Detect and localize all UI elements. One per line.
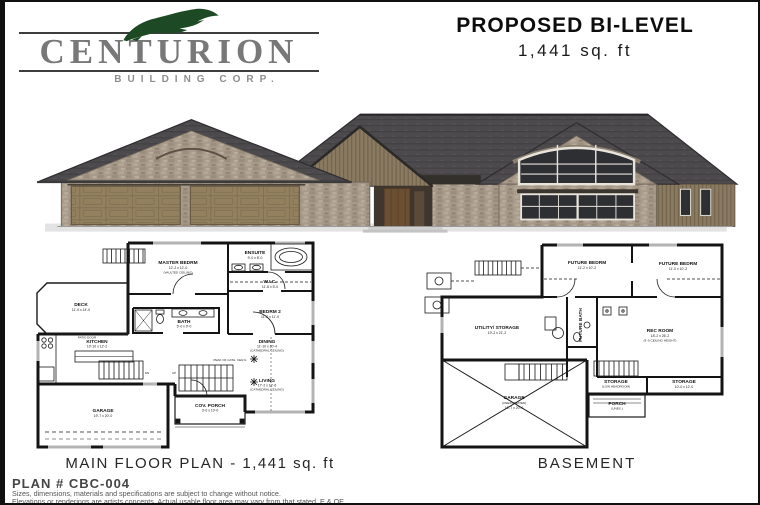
peak-note: PEAK OF CATH. CEIL'G [213, 358, 247, 362]
basement-caption: BASEMENT [437, 455, 737, 472]
room-note: (CATHEDRAL CEILING) [250, 388, 284, 392]
house-rendering [27, 86, 743, 236]
sheet-area: 1,441 sq. ft [403, 41, 747, 61]
sheet-title: PROPOSED BI-LEVEL [403, 14, 747, 38]
left-garage-wing [37, 120, 370, 227]
room-note: (VAULTED CEILING) [163, 271, 192, 275]
room-dims: 5'-0 x 9'-0 [177, 325, 192, 329]
room-note: (9'-0 CEILING HEIGHT) [644, 339, 677, 343]
room-dims: 19'-2 x 21'-2 [488, 331, 507, 335]
room-label: FUTURE BATH [578, 308, 584, 342]
room-note: (LOW HEADROOM) [602, 385, 630, 389]
room-dims: 10'-0 x 12'-0 [675, 385, 694, 389]
company-logo: CENTURION BUILDING CORP. [19, 6, 319, 85]
plan-sheet: CENTURION BUILDING CORP. PROPOSED BI-LEV… [0, 0, 760, 505]
main-floor-plan-svg: MASTER BEDRM 12'-2 x 12'-0 (VAULTED CEIL… [23, 233, 325, 451]
room-dims: 19'-7 x 20'-0 [505, 406, 524, 410]
main-floor-plan: MASTER BEDRM 12'-2 x 12'-0 (VAULTED CEIL… [23, 233, 325, 451]
disclaimer-line-2: Elevations or renderings are artists con… [12, 498, 612, 505]
room-dims: 18'-2 x 26'-2 [651, 334, 670, 338]
centurion-plume-icon [111, 8, 231, 42]
room-dims: 10'-10 x 12'-2 [87, 345, 107, 349]
room-dims: 11'-2 x 10'-2 [578, 266, 596, 270]
room-dims: 3'-0 x 10'-0 [202, 409, 219, 413]
room-note: (UNEXCAVATED) [502, 401, 527, 405]
right-wall-siding [654, 184, 735, 226]
house-elevation-svg [27, 86, 743, 236]
patio-door-note: PATIO DOOR [78, 336, 97, 340]
room-dims: 11'-0 x 14'-0 [72, 308, 90, 312]
company-tagline: BUILDING CORP. [19, 74, 319, 85]
main-floor-caption: MAIN FLOOR PLAN - 1,441 sq. ft [35, 455, 365, 472]
room-dims: 11'-0 x 10'-2 [669, 267, 687, 271]
stair-up-note: UP [172, 371, 176, 375]
stair-dn-note: DN [145, 371, 149, 375]
room-dims: 19'-7 x 20'-0 [94, 414, 113, 418]
room-dims: 11'-2 x 11'-0 [261, 315, 279, 319]
room-dims: 9'-0 x 8'-0 [248, 256, 263, 260]
disclaimer: Sizes, dimensions, materials and specifi… [12, 490, 612, 505]
basement-plan-svg: FUTURE BEDRM 11'-2 x 10'-2 FUTURE BEDRM … [417, 233, 727, 453]
room-dims: 12'-2 x 12'-0 [169, 266, 188, 270]
room-note: (CATHEDRAL CEILING) [250, 349, 284, 353]
sheet-title-block: PROPOSED BI-LEVEL 1,441 sq. ft [403, 14, 747, 61]
room-note: (UNEX.) [611, 407, 623, 411]
room-dims: 11'-8 x 5'-0 [262, 285, 278, 289]
basement-plan: FUTURE BEDRM 11'-2 x 10'-2 FUTURE BEDRM … [417, 233, 727, 453]
basement-fixtures [425, 261, 720, 447]
